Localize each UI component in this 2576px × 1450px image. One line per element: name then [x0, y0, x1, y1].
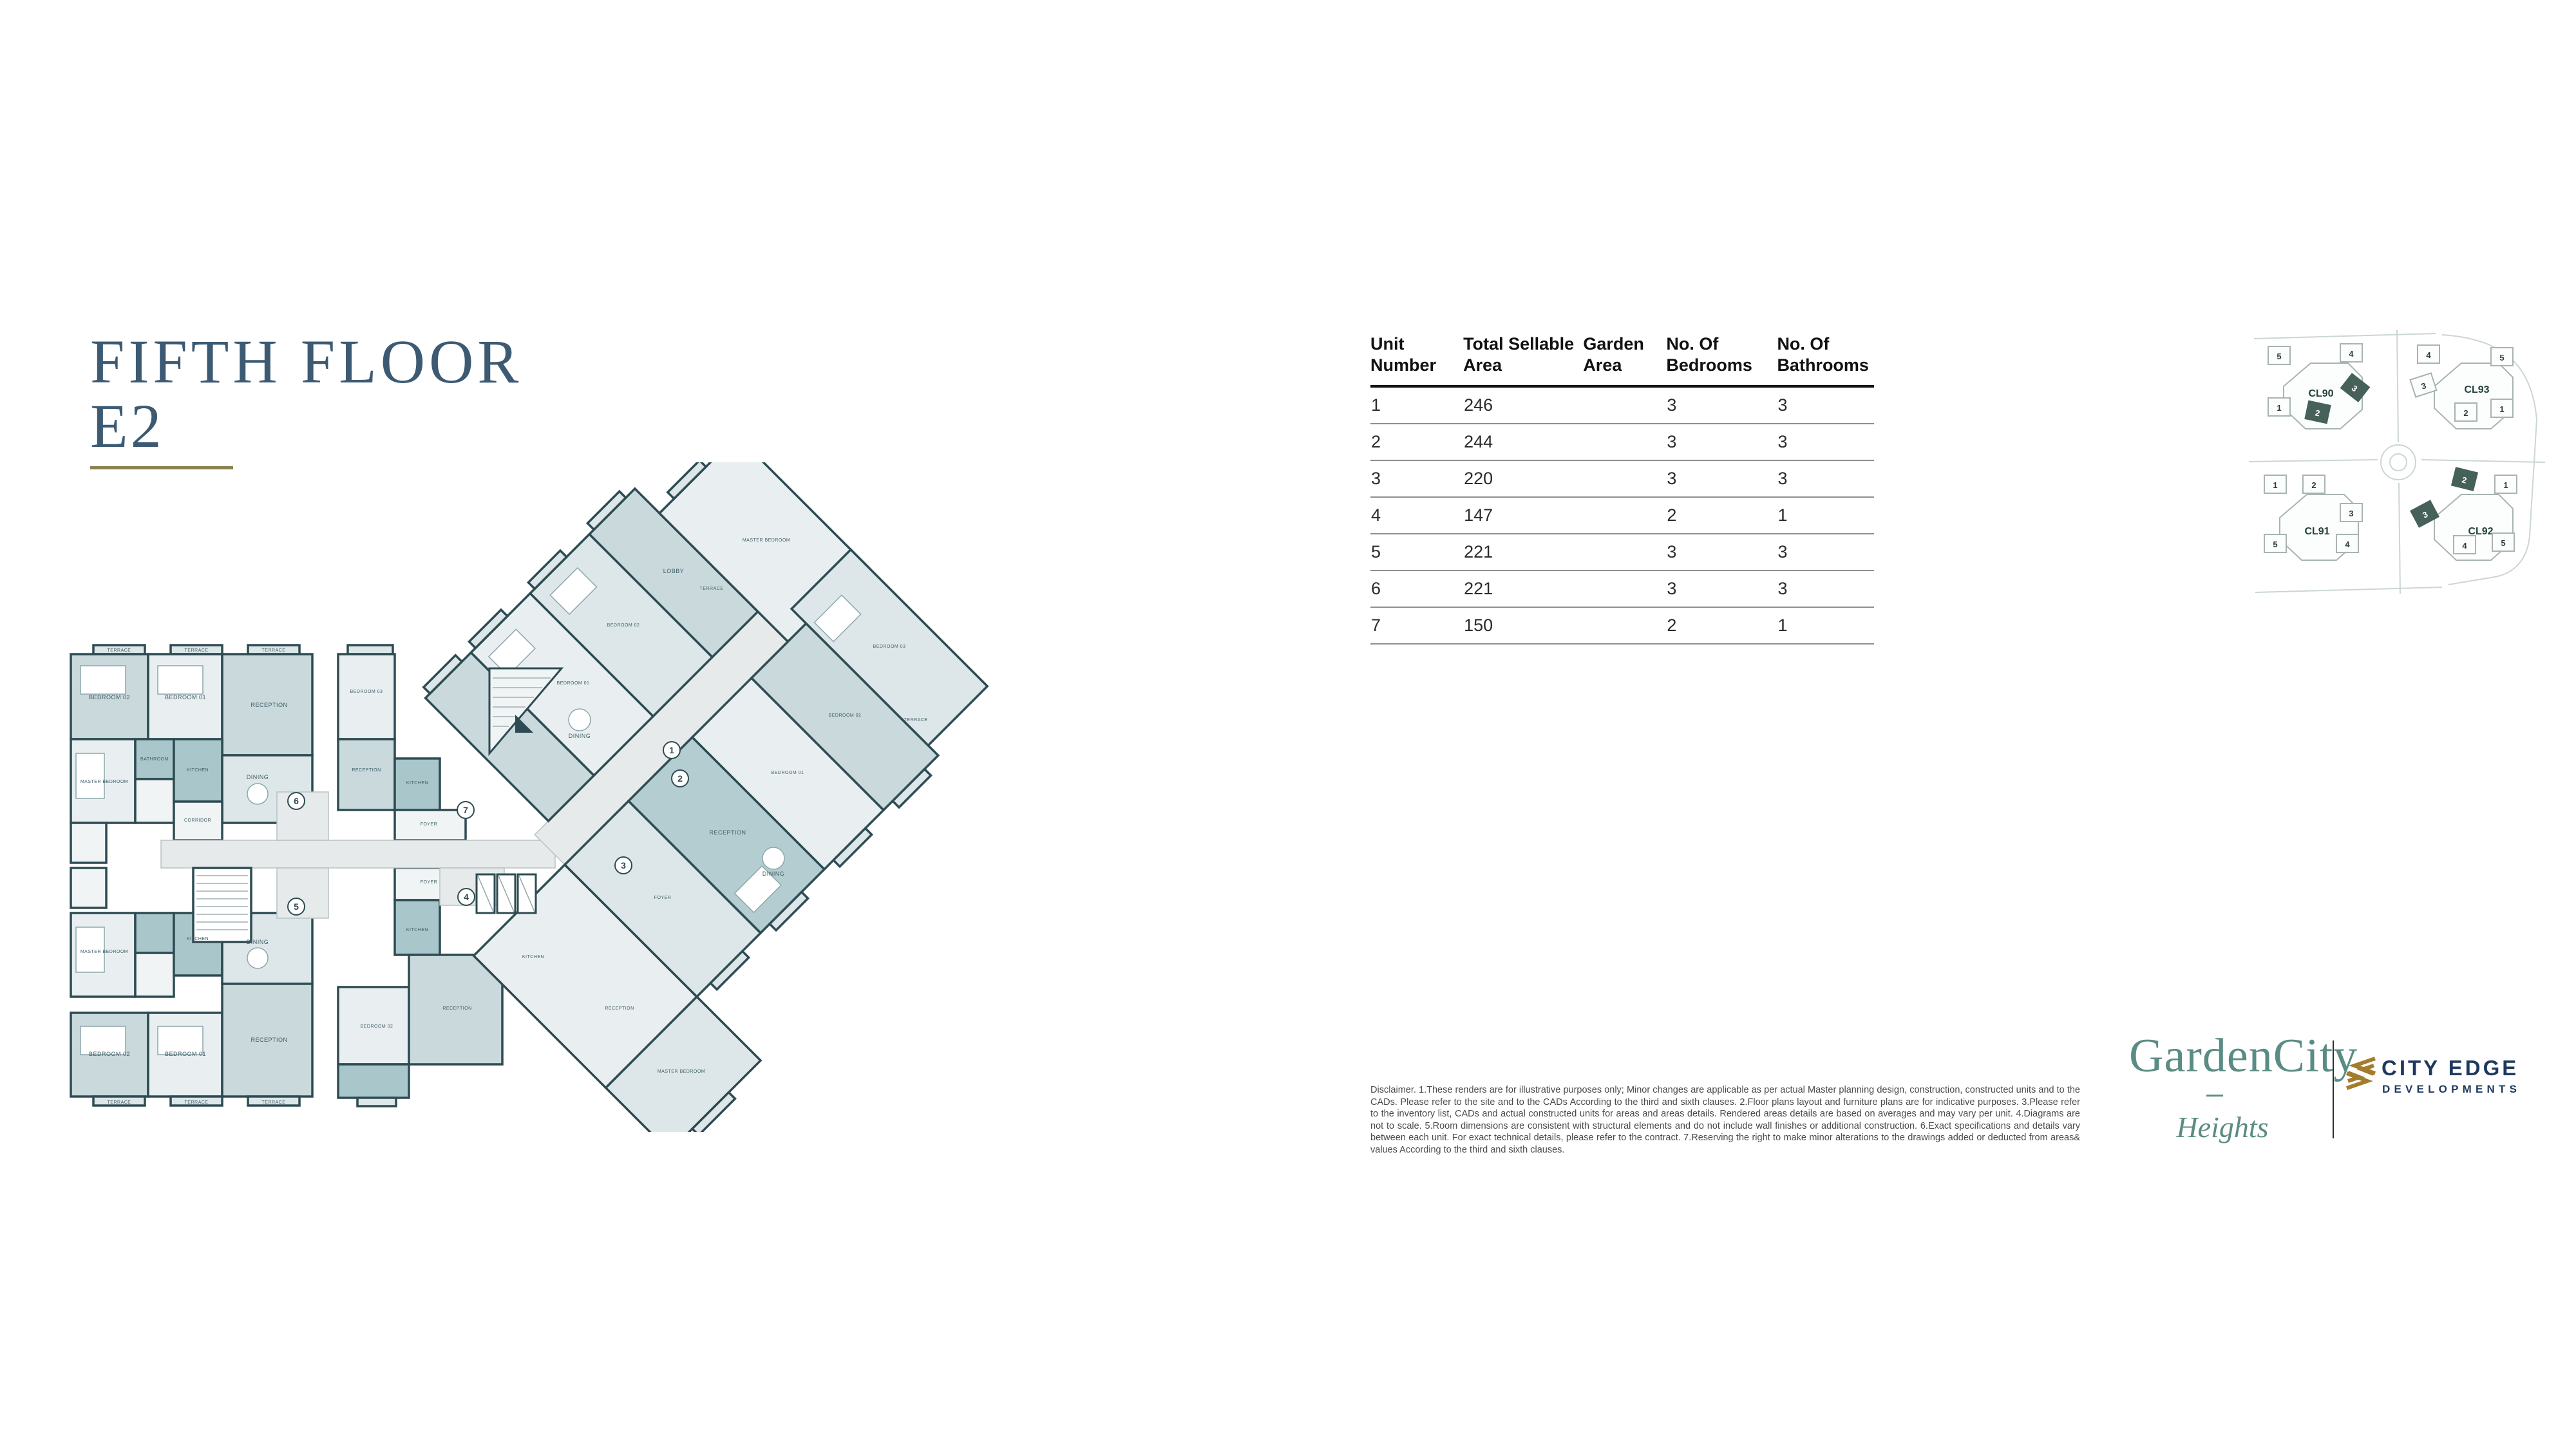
table-row: 124633 — [1370, 386, 1874, 424]
table-cell: 7 — [1370, 607, 1463, 644]
room-label: RECEPTION — [605, 1006, 634, 1011]
room-label: BEDROOM 02 — [89, 694, 130, 701]
svg-text:2: 2 — [677, 773, 683, 784]
table-col-header: Unit Number — [1370, 334, 1463, 386]
site-building: 2 — [2452, 467, 2477, 490]
room-label: TERRACE — [700, 587, 724, 591]
table-col-header: No. Of Bedrooms — [1666, 334, 1777, 386]
site-building: 3 — [2410, 373, 2437, 397]
room-label: TERRACE — [108, 648, 131, 653]
table-cell: 3 — [1666, 386, 1777, 424]
disclaimer-text: Disclaimer. 1.These renders are for illu… — [1370, 1084, 2080, 1156]
room-label: DINING — [569, 733, 591, 739]
table-cell: 246 — [1463, 386, 1583, 424]
room-label: BEDROOM 01 — [165, 694, 206, 701]
table-row: 622133 — [1370, 570, 1874, 607]
table-cell: 3 — [1777, 570, 1874, 607]
table-cell: 147 — [1463, 497, 1583, 534]
city-edge-sub: DEVELOPMENTS — [2382, 1083, 2521, 1096]
room-label: KITCHEN — [187, 937, 209, 941]
table-cell: 3 — [1777, 460, 1874, 497]
room-label: KITCHEN — [406, 781, 428, 786]
table-cell: 220 — [1463, 460, 1583, 497]
table-cell — [1583, 607, 1666, 644]
svg-text:5: 5 — [2273, 540, 2277, 549]
unit-marker: 7 — [457, 802, 474, 818]
room-label: DINING — [247, 939, 269, 945]
room-label: TERRACE — [185, 648, 209, 653]
room-label: BEDROOM 03 — [350, 690, 383, 694]
unit-data-table: Unit NumberTotal Sellable AreaGarden Are… — [1370, 334, 1874, 645]
table-row: 715021 — [1370, 607, 1874, 644]
site-building: 4 — [2454, 536, 2476, 554]
svg-text:5: 5 — [294, 901, 299, 912]
table-cell: 3 — [1666, 460, 1777, 497]
site-building: 4 — [2336, 534, 2358, 552]
site-building: 3 — [2340, 504, 2362, 522]
table-cell — [1583, 534, 1666, 570]
svg-text:4: 4 — [2345, 540, 2350, 549]
gardencity-logo: GardenCity — [2129, 1029, 2316, 1084]
svg-text:4: 4 — [2462, 541, 2467, 551]
table-cell — [1583, 386, 1666, 424]
brochure-page: FIFTH FLOOR E2 — [0, 0, 2576, 1450]
room-label: TERRACE — [262, 1100, 286, 1105]
table-cell: 3 — [1666, 570, 1777, 607]
site-map: CL9054321CL9345321CL9112354CL9221345 — [2249, 330, 2552, 600]
table-cell: 4 — [1370, 497, 1463, 534]
table-cell: 2 — [1666, 497, 1777, 534]
floor-plan: TERRACETERRACETERRACEBEDROOM 02BEDROOM 0… — [64, 462, 1011, 1132]
site-building: 5 — [2492, 533, 2514, 551]
room-label: RECEPTION — [442, 1006, 471, 1011]
svg-text:1: 1 — [2499, 404, 2504, 414]
table-row: 414721 — [1370, 497, 1874, 534]
table-cell: 3 — [1666, 424, 1777, 460]
page-title: FIFTH FLOOR E2 — [90, 330, 522, 458]
site-cluster-cl92: CL9221345 — [2410, 467, 2517, 560]
unit-marker: 6 — [288, 793, 305, 809]
room-label: CORRIDOR — [184, 818, 211, 823]
room-label: TERRACE — [108, 1100, 131, 1105]
table-cell: 2 — [1370, 424, 1463, 460]
building-code: E2 — [90, 394, 522, 458]
room-label: MASTER BEDROOM — [743, 538, 790, 543]
brand-block: GardenCity Heights CITY EDGE DEVELOPMENT… — [2119, 1028, 2544, 1156]
site-building: 1 — [2264, 475, 2286, 493]
site-building: 1 — [2491, 399, 2513, 417]
room-label: MASTER BEDROOM — [80, 950, 128, 954]
gardencity-dash — [2206, 1095, 2223, 1097]
table-cell: 1 — [1370, 386, 1463, 424]
table-cell — [1583, 570, 1666, 607]
room-label: LOBBY — [663, 568, 685, 574]
cluster-label: CL90 — [2308, 388, 2333, 399]
svg-text:5: 5 — [2501, 538, 2505, 548]
room-label: MASTER BEDROOM — [658, 1069, 705, 1074]
unit-marker: 3 — [615, 857, 632, 874]
room-label: TERRACE — [185, 1100, 209, 1105]
site-cluster-cl91: CL9112354 — [2264, 475, 2362, 560]
room-label: FOYER — [421, 880, 438, 885]
table-cell — [1583, 460, 1666, 497]
table-row: 522133 — [1370, 534, 1874, 570]
room-label: BEDROOM 02 — [607, 623, 640, 628]
cluster-label: CL93 — [2464, 384, 2489, 395]
table-row: 224433 — [1370, 424, 1874, 460]
svg-text:4: 4 — [2349, 349, 2354, 359]
room-label: BEDROOM 01 — [772, 771, 804, 775]
unit-marker: 5 — [288, 898, 305, 915]
unit-marker: 4 — [458, 889, 475, 905]
brand-divider — [2333, 1040, 2334, 1138]
room-label: KITCHEN — [522, 955, 544, 959]
table-cell: 3 — [1666, 534, 1777, 570]
table-cell: 2 — [1666, 607, 1777, 644]
room-label: BEDROOM 01 — [165, 1051, 206, 1057]
table-cell: 3 — [1777, 534, 1874, 570]
svg-text:6: 6 — [294, 796, 299, 806]
site-cluster-cl90: CL9054321 — [2268, 344, 2369, 429]
table-row: 322033 — [1370, 460, 1874, 497]
room-label: BEDROOM 02 — [829, 713, 862, 718]
table-cell: 1 — [1777, 607, 1874, 644]
city-edge-logo-icon — [2345, 1056, 2376, 1091]
room-label: KITCHEN — [406, 928, 428, 932]
svg-text:2: 2 — [2311, 480, 2316, 490]
room-label: TERRACE — [904, 718, 928, 722]
table-cell: 3 — [1777, 424, 1874, 460]
site-building: 4 — [2418, 345, 2439, 363]
unit-marker: 2 — [672, 770, 688, 787]
table-cell: 3 — [1777, 386, 1874, 424]
room-label: FOYER — [654, 896, 672, 900]
room-label: BEDROOM 01 — [557, 681, 590, 686]
room-label: RECEPTION — [352, 768, 381, 773]
city-edge-name: CITY EDGE — [2382, 1056, 2519, 1080]
room-label: RECEPTION — [251, 702, 287, 708]
floor-title: FIFTH FLOOR — [90, 330, 522, 394]
table-cell: 1 — [1777, 497, 1874, 534]
table-col-header: No. Of Bathrooms — [1777, 334, 1874, 386]
room-label: BEDROOM 02 — [361, 1024, 393, 1029]
table-col-header: Total Sellable Area — [1463, 334, 1583, 386]
site-building: 2 — [2305, 401, 2330, 423]
table-header: Unit NumberTotal Sellable AreaGarden Are… — [1370, 334, 1874, 386]
room-label: FOYER — [421, 822, 438, 827]
svg-text:4: 4 — [2426, 350, 2431, 360]
table-cell: 150 — [1463, 607, 1583, 644]
svg-text:3: 3 — [2349, 509, 2353, 518]
room-label: BATHROOM — [140, 757, 169, 762]
table-cell: 221 — [1463, 570, 1583, 607]
svg-text:5: 5 — [2277, 352, 2281, 361]
svg-text:1: 1 — [2503, 480, 2508, 490]
cluster-label: CL91 — [2304, 526, 2329, 537]
table-cell: 244 — [1463, 424, 1583, 460]
svg-text:4: 4 — [464, 892, 469, 902]
site-building: 2 — [2455, 403, 2477, 421]
table-cell: 6 — [1370, 570, 1463, 607]
room-label: MASTER BEDROOM — [80, 780, 128, 784]
svg-text:7: 7 — [463, 805, 468, 815]
table-cell: 221 — [1463, 534, 1583, 570]
room-label: BEDROOM 02 — [89, 1051, 130, 1057]
site-building: 4 — [2340, 344, 2362, 362]
site-building: 5 — [2268, 346, 2290, 364]
room-label: DINING — [247, 774, 269, 780]
table-cell: 5 — [1370, 534, 1463, 570]
svg-text:1: 1 — [669, 745, 674, 755]
gardencity-heights: Heights — [2129, 1110, 2316, 1144]
table-cell — [1583, 424, 1666, 460]
site-building: 1 — [2268, 398, 2290, 416]
site-building: 1 — [2495, 475, 2517, 493]
site-cluster-cl93: CL9345321 — [2410, 345, 2513, 429]
site-building: 2 — [2303, 475, 2325, 493]
svg-text:3: 3 — [621, 860, 626, 871]
svg-text:1: 1 — [2277, 403, 2281, 413]
svg-text:1: 1 — [2273, 480, 2277, 490]
room-label: DINING — [762, 871, 785, 877]
svg-text:2: 2 — [2463, 408, 2468, 418]
site-building: 5 — [2491, 348, 2513, 366]
room-label: RECEPTION — [251, 1037, 287, 1043]
room-label: RECEPTION — [709, 829, 746, 836]
room-label: KITCHEN — [187, 768, 209, 773]
table-cell — [1583, 497, 1666, 534]
site-building: 5 — [2264, 534, 2286, 552]
table-cell: 3 — [1370, 460, 1463, 497]
unit-marker: 1 — [663, 742, 680, 758]
room-label: TERRACE — [262, 648, 286, 653]
elevator-bank — [477, 874, 536, 913]
room-label: BEDROOM 03 — [873, 645, 906, 649]
svg-text:5: 5 — [2499, 353, 2504, 362]
table-col-header: Garden Area — [1583, 334, 1666, 386]
